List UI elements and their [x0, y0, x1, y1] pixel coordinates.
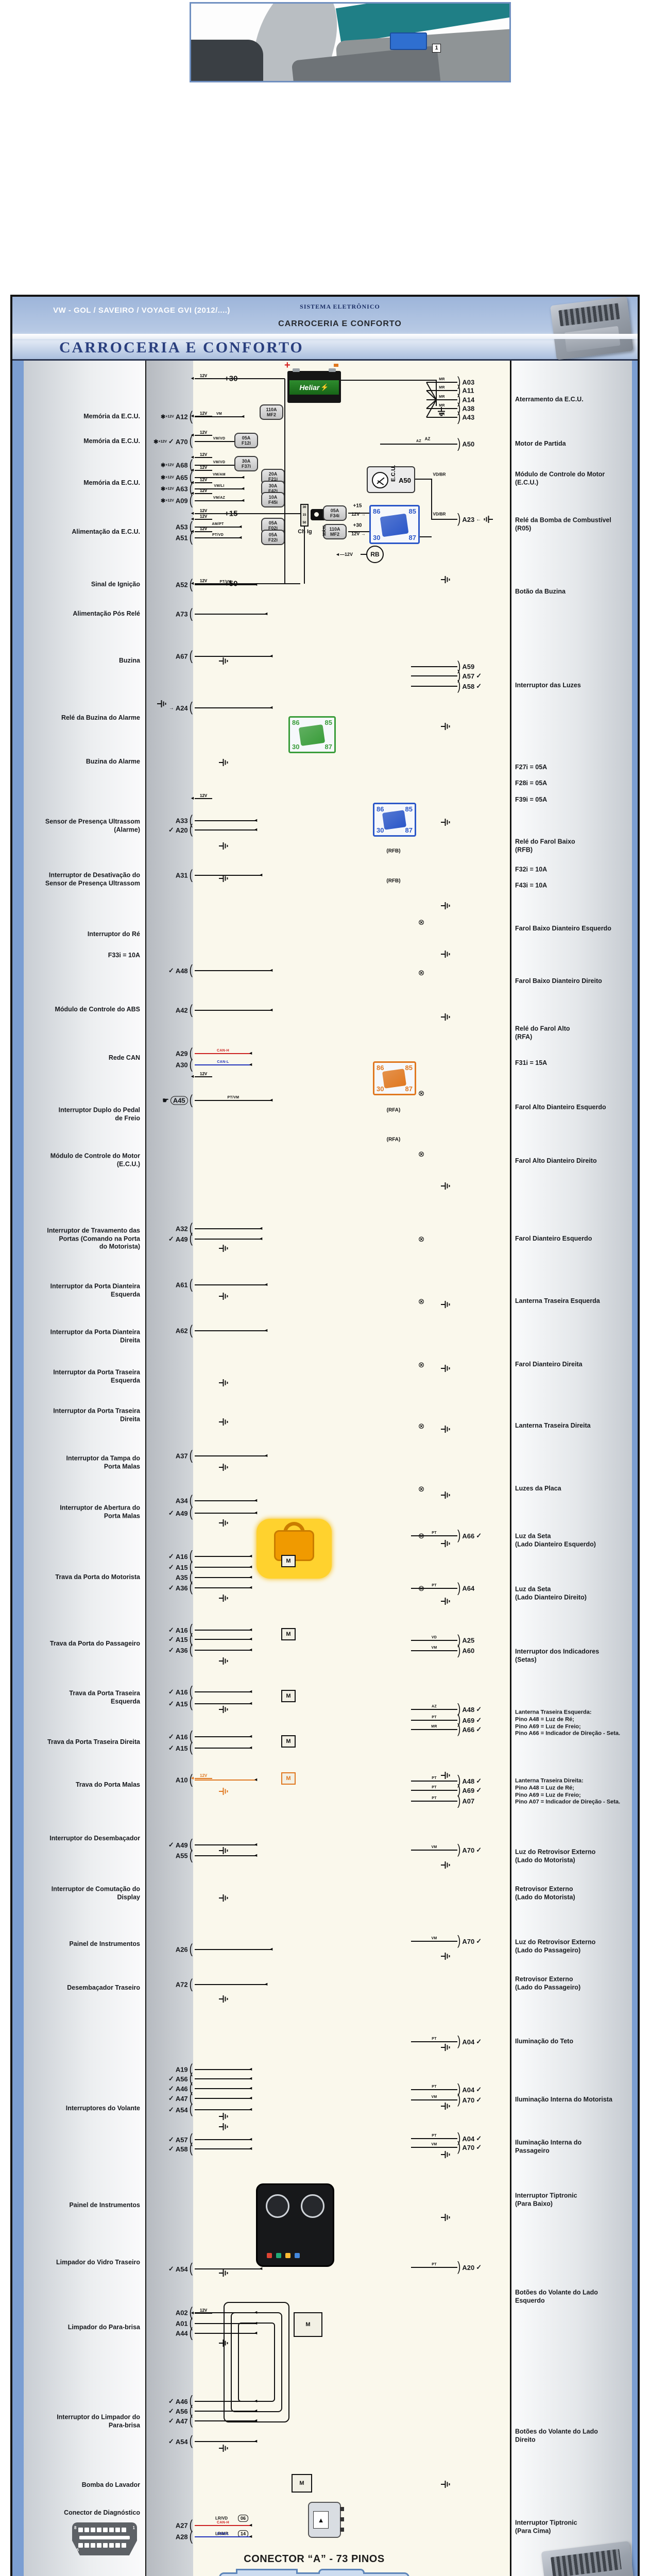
- central-text: 12V →: [351, 531, 366, 536]
- relay-pin-30: 30: [377, 1085, 384, 1093]
- ground-icon: [219, 2112, 229, 2121]
- arrow-icon: ◄: [253, 1498, 258, 1503]
- arrow-icon: ◄: [269, 1947, 273, 1952]
- motor-box: M: [281, 1735, 296, 1748]
- component-label: Lanterna Traseira Esquerda: [515, 1297, 630, 1306]
- fuse-MF2: 110AMF2: [260, 404, 283, 420]
- wire-stub: AZ: [411, 1709, 457, 1710]
- check-icon: ✓: [168, 967, 174, 975]
- lightning-icon: ⚡: [320, 383, 329, 392]
- ecu-start-box: E.C.U. A50: [367, 466, 415, 493]
- pin-code: A15: [176, 1700, 188, 1708]
- relay-pin-87: 87: [325, 743, 332, 751]
- arrow-icon: ◄: [253, 2439, 258, 2444]
- wire-stub: VM: [411, 1941, 457, 1942]
- wire-stub: CAN-L◄: [195, 2536, 251, 2537]
- ground-icon: [441, 1364, 451, 1372]
- pin-A04: )A04✓: [457, 2134, 482, 2143]
- pin-code: A20: [176, 826, 188, 834]
- arrow-icon: ◄: [241, 475, 245, 480]
- component-label: Trava da Porta Traseira Direita: [21, 1738, 140, 1747]
- relay-pin-30: 30: [292, 743, 299, 751]
- pin-code: A70: [462, 2096, 474, 2104]
- pin-A66: )A66✓: [457, 1725, 482, 1734]
- arrow-icon: ◄: [248, 1689, 253, 1694]
- pin-A20: )A20✓: [457, 2263, 482, 2272]
- pin-code: A46: [176, 2398, 188, 2405]
- arrow-icon: ◄: [241, 486, 245, 491]
- component-label: Motor de Partida: [515, 440, 630, 448]
- component-label: Relé da Buzina do Alarme: [21, 714, 140, 722]
- pin-code: A26: [176, 1946, 188, 1954]
- pin-code: A54: [176, 2265, 188, 2273]
- wire-stub: ◄: [195, 2333, 256, 2334]
- check-icon: ✓: [168, 2136, 174, 2144]
- check-icon: ✓: [476, 1786, 482, 1794]
- wire-stub: AZ: [380, 444, 457, 445]
- edge-12v: ◄12V: [195, 798, 212, 799]
- pin-A69: )A69✓: [457, 1716, 482, 1724]
- rail-label: +15: [225, 510, 237, 518]
- pin-A34: A34(: [176, 1497, 193, 1504]
- pin-bracket: ): [457, 1796, 460, 1807]
- ground-icon: [219, 1846, 229, 1855]
- check-icon: ✓: [476, 2038, 482, 2046]
- pin-A64: )A64: [457, 1584, 474, 1592]
- component-label: Botões do Volante do Lado Direito: [515, 2428, 630, 2444]
- wire-stub: ◄: [195, 1748, 251, 1749]
- edge-12v-label: 12V: [200, 488, 207, 493]
- ground-icon: [219, 1379, 229, 1387]
- pin-code: A49: [176, 1510, 188, 1517]
- battery-label-band: Heliar ⚡: [289, 380, 339, 395]
- pin-A70: )A70✓: [457, 2143, 482, 2151]
- wire-stub: ◄: [195, 1703, 251, 1704]
- wire-code: MR: [411, 1725, 457, 1728]
- component-label: Botões do Volante do Lado Esquerdo: [515, 2289, 630, 2304]
- check-icon: ✓: [476, 1725, 482, 1734]
- check-icon: ✓: [168, 1744, 174, 1752]
- arrow-icon: ◄: [248, 2067, 253, 2072]
- component-label: Lanterna Traseira Direita: [515, 1422, 630, 1430]
- pin-code: A69: [462, 1717, 474, 1724]
- arrow-icon: ◄: [264, 1982, 268, 1987]
- wire-stub: ◄: [195, 1691, 251, 1692]
- pin-code: A28: [176, 2533, 188, 2541]
- lamp-icon: ⊗: [418, 968, 425, 977]
- fuse-code: F22i: [268, 537, 278, 543]
- warning-lights: [267, 2253, 300, 2258]
- wire-stub: ◄: [195, 1455, 267, 1456]
- wire-stub: ◄: [195, 1577, 251, 1578]
- check-icon: ✓: [168, 1235, 174, 1243]
- relay-pin-85: 85: [409, 507, 416, 515]
- wire-code: PT: [411, 1716, 457, 1719]
- arrow-icon: ◄: [253, 1853, 258, 1858]
- edge-12v-label: 12V: [200, 478, 207, 482]
- ground-icon: [157, 700, 167, 708]
- ground-icon: [441, 2480, 451, 2488]
- fuse-F45i: 10AF45i: [261, 492, 285, 507]
- pin-code: A49: [176, 1841, 188, 1849]
- battery-terminal-positive: [293, 368, 300, 372]
- pin-code: A48: [176, 967, 188, 975]
- wire-stub: PT/VM◄: [195, 1100, 272, 1101]
- wire-code: MR: [426, 386, 457, 389]
- pin-bracket: (: [190, 2264, 193, 2275]
- pin-code: A73: [176, 611, 188, 618]
- pin-code: A46: [176, 2085, 188, 2093]
- pin-bracket: (: [190, 1699, 193, 1709]
- central-text: +15: [353, 503, 362, 509]
- door-lock-highlight: [256, 1519, 332, 1579]
- component-label: Interruptor de Abertura do Porta Malas: [21, 1504, 140, 1520]
- ground-icon: [441, 1491, 451, 1499]
- central-text: (RFB): [386, 849, 400, 854]
- ground-icon: [219, 1244, 229, 1252]
- pin-bracket: (: [190, 1979, 193, 1990]
- edge-12v: ◄12V: [195, 482, 212, 483]
- relay-2: 86853087: [373, 803, 416, 837]
- central-text: ◄—12V: [335, 552, 353, 557]
- pin-code: A37: [176, 1452, 188, 1460]
- pin-code: A36: [176, 1647, 188, 1654]
- arrow-icon: ◄: [238, 524, 243, 529]
- central-text: VD/BR: [433, 512, 446, 517]
- component-label: Interruptor do Limpador do Para-brisa: [21, 2413, 140, 2429]
- edge-12v-label: 12V: [200, 527, 207, 531]
- wire-code: PT: [411, 2037, 457, 2041]
- wire-code: VM: [411, 1937, 457, 1940]
- ground-icon: [441, 818, 451, 826]
- component-label: Interruptor do Desembaçador: [21, 1835, 140, 1843]
- arrow-icon: ◄: [248, 2146, 253, 2151]
- wire-code: AM/PT: [195, 522, 241, 526]
- star-12v-icon: ✱+12V: [161, 498, 174, 504]
- wire-stub: ◄: [195, 1239, 262, 1240]
- pin-code: A24: [176, 704, 188, 712]
- edge-12v: ◄12V: [195, 531, 212, 532]
- pin-code: A50: [462, 440, 474, 448]
- pin-code: A67: [176, 653, 188, 660]
- connector-a: 16 01 37 17 41 38 62 42 73 63: [219, 2572, 409, 2576]
- ground-icon: [441, 1300, 451, 1309]
- pin-code: A10: [176, 1776, 188, 1784]
- ground-icon: [441, 1539, 451, 1548]
- pin-code: A49: [176, 1235, 188, 1243]
- component-label: Memória da E.C.U.: [21, 413, 140, 421]
- motor-box: M: [281, 1690, 296, 1702]
- edge-12v: ◄12V: [195, 2313, 212, 2314]
- component-label: Bomba do Lavador: [21, 2481, 140, 2489]
- ground-icon: [219, 1463, 229, 1471]
- wire-stub: ◄: [195, 2088, 251, 2089]
- ground-icon: [441, 1597, 451, 1605]
- arrow-icon: ◄: [238, 535, 243, 540]
- ecu-box-label: E.C.U.: [390, 465, 397, 482]
- fuse-code: F37i: [242, 464, 251, 469]
- arrow-icon: ◄: [241, 414, 245, 419]
- edge-12v: ◄12V: [195, 583, 212, 584]
- edge-12v: ◄12V: [195, 493, 212, 494]
- check-icon: ✓: [476, 2143, 482, 2151]
- check-icon: ✓: [168, 2075, 174, 2083]
- arrow-icon: ◄: [190, 376, 195, 381]
- pin-bracket: (: [190, 2105, 193, 2115]
- wire-stub: ◄: [195, 1330, 267, 1331]
- wire-code: CAN-L: [195, 2532, 251, 2536]
- wire-stub: ◄: [195, 1855, 256, 1856]
- relay-body: [380, 513, 408, 536]
- arrow-icon: ◄: [264, 612, 268, 616]
- wire-code: VM/AZ: [195, 496, 244, 500]
- ground-icon: [219, 1995, 229, 2003]
- component-label: Trava da Porta do Motorista: [21, 1573, 140, 1582]
- lamp-icon: ⊗: [418, 1297, 425, 1306]
- fuse-F34i: 05AF34i: [323, 505, 347, 521]
- arrow-icon: ◄: [253, 2321, 258, 2326]
- pin-code: A38: [462, 405, 474, 413]
- ground-icon: [219, 2339, 229, 2347]
- pin-bracket: (: [190, 825, 193, 836]
- arrow-icon: ◄: [253, 2310, 258, 2315]
- component-label: Iluminação Interna do Passageiro: [515, 2139, 630, 2155]
- edge-12v-label: 12V: [200, 509, 207, 513]
- wire-stub: ◄: [195, 2078, 251, 2079]
- component-label: Limpador do Vidro Traseiro: [21, 2259, 140, 2267]
- fuse-amp: 30A: [242, 459, 251, 464]
- central-text: (RFA): [387, 1108, 401, 1113]
- pin-bracket: (: [190, 2416, 193, 2427]
- pin-code: A12: [176, 413, 188, 421]
- pin-code: A61: [176, 1281, 188, 1289]
- pin-code: A16: [176, 1733, 188, 1741]
- arrow-icon: ◄: [248, 2076, 253, 2081]
- component-label: Painel de Instrumentos: [21, 1940, 140, 1948]
- wire-stub: ◄: [195, 656, 272, 657]
- edge-12v-label: 12V: [200, 1773, 207, 1778]
- ignition-pos: 15: [303, 514, 306, 517]
- pin-A45: ☛A45(: [162, 1096, 193, 1105]
- arrow-icon: ◄: [253, 2399, 258, 2403]
- fuse-amp: 05A: [331, 508, 339, 513]
- component-label: Trava do Porta Malas: [21, 1781, 140, 1789]
- pin-code: A09: [176, 497, 188, 505]
- pin-bracket: ): [457, 2037, 460, 2047]
- arrow-icon: ◄: [190, 1776, 195, 1781]
- arrow-icon: ◄: [190, 796, 195, 801]
- edge-12v: ◄12V: [195, 519, 212, 520]
- lamp-icon: ⊗: [418, 1360, 425, 1369]
- edge-12v: ◄12V: [195, 457, 212, 458]
- motor-box: M: [294, 2312, 322, 2337]
- component-label: F27i = 05A F28i = 05A F39i = 05A: [515, 764, 630, 804]
- wire-stub: ◄: [195, 1556, 251, 1557]
- component-label: Alimentação Pós Relé: [21, 610, 140, 618]
- pin-A30: A30(: [176, 1061, 193, 1069]
- instrument-cluster: [256, 2183, 334, 2267]
- pin-bracket: (: [190, 436, 193, 447]
- system-subtitle: CARROCERIA E CONFORTO: [247, 319, 433, 329]
- check-icon: ✓: [168, 1700, 174, 1708]
- wire-stub: PT: [411, 1790, 457, 1791]
- pin-code: A58: [176, 2145, 188, 2153]
- arrow-icon: ◄: [253, 2331, 258, 2335]
- arrow-icon: ◄: [264, 1453, 268, 1458]
- check-icon: ✓: [168, 1841, 174, 1849]
- pin-bracket: ): [457, 681, 460, 692]
- wire-stub: PT: [411, 1720, 457, 1721]
- pin-A69: )A69✓: [457, 1786, 482, 1794]
- pin-A27: A27(: [176, 2521, 193, 2529]
- check-icon: ✓: [168, 826, 174, 834]
- pin-code: A15: [176, 1564, 188, 1571]
- pin-code: A59: [462, 663, 474, 671]
- component-label: Luz do Retrovisor Externo (Lado do Motor…: [515, 1848, 630, 1864]
- pin-code: A58: [462, 683, 474, 690]
- ground-icon: [219, 1594, 229, 1602]
- gauge-left: [266, 2194, 289, 2218]
- pin-code: A45: [170, 1096, 188, 1105]
- central-text: 12V →: [351, 512, 366, 517]
- lamp-icon: ⊗: [418, 1234, 425, 1244]
- wire-code: AZ: [411, 1705, 457, 1708]
- pin-bracket: (: [190, 1496, 193, 1506]
- wire-stub: [411, 675, 457, 676]
- pin-A67: A67(: [176, 652, 193, 660]
- component-label: Interruptores do Volante: [21, 2105, 140, 2113]
- check-icon: ✓: [168, 2437, 174, 2446]
- wire-stub: ◄: [195, 707, 272, 708]
- wiring-diagram-page: 1 VW - GOL / SAVEIRO / VOYAGE GVI (2012/…: [0, 0, 650, 2576]
- wire-stub: ◄: [195, 829, 256, 831]
- star-12v-icon: ✱+12V: [161, 462, 174, 469]
- obd-wire-1: LR/VD: [215, 2516, 228, 2521]
- pin-bracket: ): [457, 514, 460, 525]
- component-label: Aterramento da E.C.U.: [515, 396, 630, 404]
- pin-A50: )A50: [457, 440, 474, 448]
- wire-code: VM: [411, 1646, 457, 1650]
- component-label: Lanterna Traseira Esquerda: Pino A48 = L…: [515, 1709, 630, 1738]
- edge-12v-label: 12V: [200, 452, 207, 457]
- pin-A43: )A43: [457, 413, 474, 421]
- arrow-icon: ◄: [248, 2523, 253, 2528]
- ground-icon: [441, 1952, 451, 1960]
- fuse-code: F12i: [242, 440, 251, 446]
- arrow-icon: ◄: [248, 2086, 253, 2091]
- vehicle-title: VW - GOL / SAVEIRO / VOYAGE GVI (2012/..…: [21, 306, 263, 315]
- pin-A73: A73(: [176, 610, 193, 618]
- motor-box: M: [292, 2474, 312, 2493]
- pin-code: A27: [176, 2522, 188, 2530]
- pin-A49: ✓A49(: [168, 1235, 193, 1243]
- pin-A57: )A57✓: [457, 672, 482, 680]
- pin-bracket: (: [190, 1060, 193, 1071]
- triangle-icon: ▲: [313, 2511, 329, 2529]
- fuse-amp: 30A: [269, 483, 278, 488]
- ground-icon: [441, 2150, 451, 2159]
- wire-code: VM: [411, 2143, 457, 2146]
- arrow-icon: ◄: [190, 433, 195, 437]
- edge-12v-label: 12V: [200, 2308, 207, 2313]
- wire-stub: ◄: [195, 1513, 256, 1514]
- wire-code: VM/LI: [195, 484, 244, 488]
- ignition-switch: 301550: [300, 504, 309, 527]
- battery: Heliar ⚡: [287, 371, 341, 403]
- pin-A36: ✓A36(: [168, 1584, 193, 1592]
- star-12v-icon: ✱+12V: [161, 414, 174, 420]
- edge-12v: ◄12V: [195, 416, 212, 417]
- pin-A29: A29(: [176, 1049, 193, 1057]
- component-label: Interruptor de Desativação do Sensor de …: [21, 871, 140, 887]
- pin-bracket: (: [190, 2436, 193, 2447]
- pin-A49: ✓A49(: [168, 1841, 193, 1849]
- pin-bracket: ): [457, 2262, 460, 2273]
- arrow-icon: ◄: [269, 705, 273, 710]
- component-label: Luz da Seta (Lado Dianteiro Esquerdo): [515, 1532, 630, 1548]
- wire-stub: CAN-H◄: [195, 1053, 251, 1054]
- component-label: Limpador do Para-brisa: [21, 2324, 140, 2332]
- pin-code: A47: [176, 2417, 188, 2425]
- check-icon: ✓: [476, 1846, 482, 1854]
- pin-bracket: (: [190, 609, 193, 620]
- wire-stub: MR: [426, 382, 457, 383]
- pin-code: A70: [462, 1938, 474, 1945]
- pin-bracket: ): [457, 412, 460, 423]
- pin-bracket: (: [190, 1451, 193, 1462]
- pin-bracket: ): [457, 2142, 460, 2153]
- pin-code: A56: [176, 2075, 188, 2083]
- ground-icon: [441, 2043, 451, 2052]
- check-icon: ✓: [168, 1509, 174, 1517]
- wire-stub: ◄: [195, 1010, 272, 1011]
- wire-stub: PT: [411, 2138, 457, 2139]
- component-label: Iluminação do Teto: [515, 2038, 630, 2046]
- check-icon: ✓: [168, 1584, 174, 1592]
- fuse-amp: 10A: [269, 495, 278, 500]
- wire-stub: ◄: [195, 1567, 251, 1568]
- fuse-amp: 05A: [269, 520, 278, 526]
- battery-terminal-negative: [329, 368, 336, 372]
- pin-code: A55: [176, 1852, 188, 1860]
- component-label: Trava da Porta Traseira Esquerda: [21, 1689, 140, 1705]
- pin-A48: ✓A48(: [168, 967, 193, 975]
- arrow-icon: ◄: [248, 2096, 253, 2100]
- ground-icon: [441, 2213, 451, 2222]
- pin-code: A14: [462, 396, 474, 404]
- edge-12v: ◄12V: [195, 470, 212, 471]
- check-icon: ✓: [168, 1552, 174, 1561]
- lamp-icon: ⊗: [418, 1149, 425, 1159]
- arrow-icon: ◄: [248, 1637, 253, 1641]
- ground-icon: [219, 1657, 229, 1665]
- pin-code: A15: [176, 1636, 188, 1643]
- pin-code: A01: [176, 2320, 188, 2328]
- component-label: Módulo de Controle do Motor (E.C.U.): [21, 1152, 140, 1168]
- ecu-connector-slots: [558, 303, 620, 327]
- pin-code: A16: [176, 1688, 188, 1696]
- wire-code: VD: [411, 1636, 457, 1639]
- pin-A51: A51(: [176, 534, 193, 541]
- pin-code: A65: [176, 474, 188, 482]
- motor-box: M: [281, 1772, 296, 1785]
- wire-stub: ◄: [195, 2411, 256, 2412]
- dashboard-photo: 1: [190, 2, 511, 82]
- component-label: Luz da Seta (Lado Dianteiro Direito): [515, 1585, 630, 1601]
- pin-A28: A28(: [176, 2533, 193, 2540]
- check-icon: ✓: [168, 2265, 174, 2273]
- pin-bracket: (: [190, 703, 193, 714]
